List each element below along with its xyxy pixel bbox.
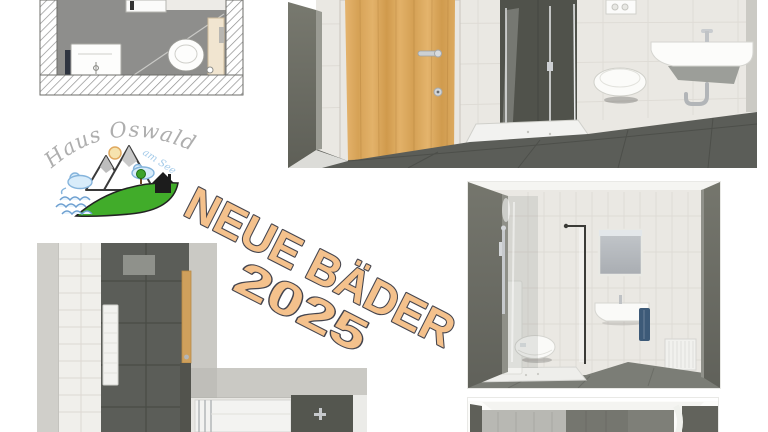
mirror-cabinet: [599, 230, 642, 275]
render-entrance-door-shower-wc: [288, 0, 757, 168]
plan-shelf-column: [207, 18, 224, 75]
inner-wall-band: [189, 243, 217, 368]
plan-wall-bottom: [40, 75, 243, 95]
plan-toilet: [168, 39, 204, 71]
tile-wall-band: [59, 243, 101, 432]
radiator-topdown: [103, 305, 118, 385]
radiator: [665, 339, 696, 370]
outer-wall: [37, 243, 59, 432]
door-handle: [184, 355, 189, 360]
shower-head: [501, 226, 506, 231]
left-wall: [468, 182, 502, 388]
render-topdown-view: [37, 243, 367, 432]
sun-icon: [109, 147, 121, 159]
faucet: [619, 295, 622, 304]
door-topdown: [182, 271, 191, 363]
floor-plan-drawing: [38, 0, 245, 97]
left-wall: [288, 2, 316, 168]
render-walkin-shower-bath: [468, 182, 720, 388]
render-strip-cutoff: [468, 398, 718, 432]
wall-band-horizontal: [191, 368, 367, 398]
plan-vanity: [71, 44, 121, 77]
wooden-door: [340, 0, 460, 163]
flush-plate: [606, 0, 636, 14]
bathtub-shower-topdown: [195, 400, 291, 432]
logo-haus-oswald-am-see: Haus Oswald am See: [42, 120, 207, 235]
poster-canvas: Haus Oswald am See: [0, 0, 768, 432]
right-wall: [704, 182, 720, 388]
house-icon: [152, 172, 174, 193]
waves-icon: [56, 197, 92, 214]
